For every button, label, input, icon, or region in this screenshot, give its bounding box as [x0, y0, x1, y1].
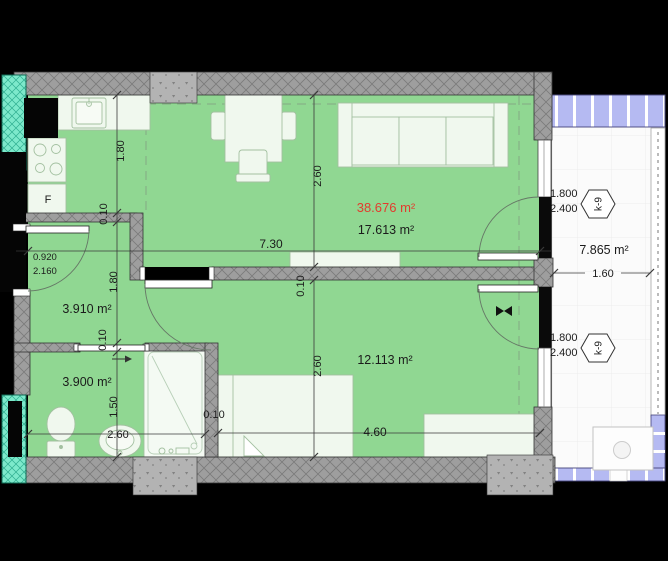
dimension-label: 4.60 [363, 425, 387, 439]
balcony-floor [552, 95, 665, 480]
bathroom-area-label: 3.900 m² [62, 375, 111, 389]
stove [28, 138, 66, 182]
sofa-cushion [399, 117, 446, 165]
wall-shower [205, 343, 218, 457]
wall-top [14, 72, 552, 95]
dimension-label: 0.10 [295, 275, 307, 296]
shower [144, 348, 206, 458]
wall-bottom [14, 457, 555, 483]
sofa-cushion [446, 117, 493, 165]
window-tag-lower: k-9 [581, 334, 615, 362]
shaft-void-bottom [8, 401, 22, 457]
toilet-button [60, 446, 63, 449]
wall-bathroom-right [145, 343, 207, 351]
door-leaf [26, 226, 89, 233]
washing-machine [593, 427, 653, 470]
door-leaf [78, 345, 145, 351]
total-area-label: 38.676 m² [357, 200, 416, 215]
dimension-label: 0.10 [98, 203, 110, 224]
dimension-label: 7.30 [259, 237, 283, 251]
toilet-tank [47, 441, 75, 457]
hallway-area-label: 3.910 m² [62, 302, 111, 316]
chair [239, 150, 267, 176]
chair [281, 112, 296, 140]
door-jamb [140, 267, 145, 280]
dresser [424, 414, 536, 457]
fridge-label: F [45, 194, 52, 206]
sofa-armrest [494, 103, 508, 167]
balcony-door-height-label: 2.400 [550, 203, 578, 215]
wall-bathroom-left [14, 343, 80, 352]
bedroom-area-label: 12.113 m² [357, 353, 412, 367]
sofa-cushion [352, 117, 399, 165]
door-jamb [209, 267, 214, 280]
concrete-column [150, 72, 197, 103]
door-leaf [145, 280, 212, 288]
wall-middle [212, 267, 535, 280]
floor-plan: 38.676 m² 17.613 m² 12.113 m² 3.910 m² 3… [0, 0, 668, 561]
wall-right-upper [534, 72, 552, 140]
door-leaf [478, 253, 538, 260]
dimension-label: 1.60 [592, 268, 613, 280]
entry-void [0, 152, 26, 292]
shaft-void [24, 98, 58, 138]
dimension-label: 2.60 [312, 355, 324, 376]
balcony-door-height-label: 2.400 [550, 347, 578, 359]
wall-balcony-pier [534, 258, 553, 287]
balcony [552, 95, 665, 481]
dimension-label: 2.60 [107, 429, 128, 441]
balcony-top-railing [552, 95, 665, 127]
entry-door-width-label: 0.920 [33, 252, 57, 263]
floor-plan-canvas: 38.676 m² 17.613 m² 12.113 m² 3.910 m² 3… [0, 0, 668, 561]
balcony-door-width-label: 1.800 [550, 332, 578, 344]
chair-backrest [236, 174, 270, 182]
chair [211, 112, 226, 140]
window-tag-upper: k-9 [581, 190, 615, 218]
dimension-label: 2.60 [312, 165, 324, 186]
tv-cabinet [290, 252, 400, 267]
shower-tray [144, 348, 206, 458]
dimension-label: 1.80 [108, 271, 120, 292]
dimension-label: 1.50 [108, 396, 120, 417]
window-tag-label: k-9 [594, 341, 605, 355]
balcony-door-width-label: 1.800 [550, 188, 578, 200]
dimension-label: 1.80 [115, 140, 127, 161]
washing-machine-door-icon [614, 442, 631, 459]
door-leaf [478, 285, 538, 292]
bed [218, 375, 353, 457]
dimension-label: 0.10 [97, 329, 109, 350]
concrete-column [487, 455, 553, 495]
door-jamb [13, 289, 30, 296]
toilet-bowl [47, 407, 75, 441]
toilet [47, 407, 75, 457]
shower-mixer [176, 448, 189, 454]
window-tag-label: k-9 [594, 197, 605, 211]
dimension-label: 0.10 [203, 409, 224, 421]
sofa-armrest [338, 103, 352, 167]
bed-frame [218, 375, 353, 457]
wall-right-lower [534, 407, 552, 457]
sofa [338, 103, 508, 167]
living-area-label: 17.613 m² [358, 223, 414, 237]
balcony-area-label: 7.865 m² [579, 243, 628, 257]
entry-door-height-label: 2.160 [33, 266, 57, 277]
concrete-column [133, 457, 197, 495]
